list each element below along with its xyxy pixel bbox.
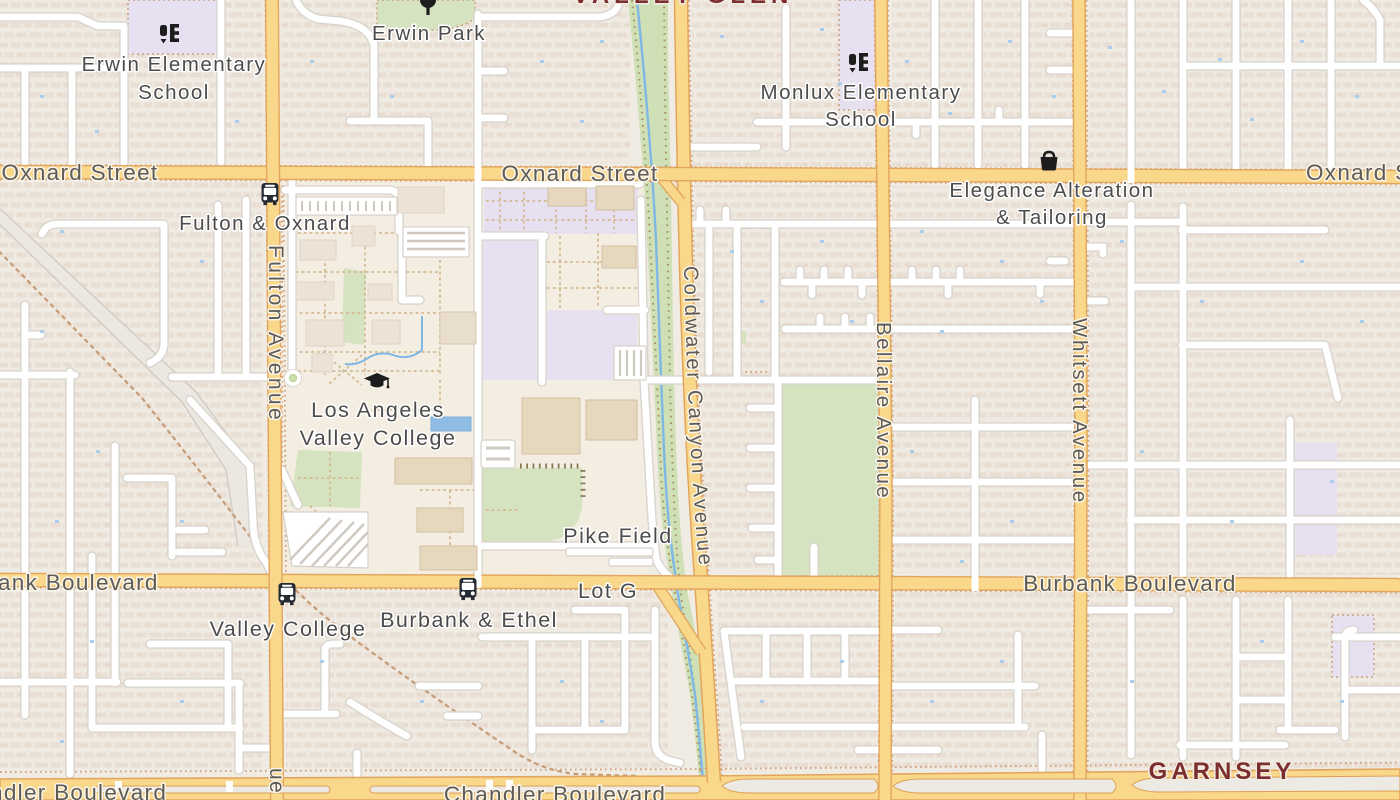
- svg-text:School: School: [825, 108, 897, 131]
- svg-text:Oxnard Street: Oxnard Street: [2, 160, 159, 185]
- svg-text:Los Angeles: Los Angeles: [311, 398, 445, 422]
- svg-text:Oxnard Street: Oxnard Street: [1306, 160, 1400, 185]
- svg-text:Erwin Park: Erwin Park: [372, 22, 486, 45]
- svg-text:& Tailoring: & Tailoring: [996, 206, 1108, 229]
- svg-text:Chandler Boulevard: Chandler Boulevard: [444, 782, 666, 800]
- svg-text:Monlux Elementary: Monlux Elementary: [761, 81, 962, 104]
- svg-text:Pike Field: Pike Field: [563, 524, 672, 548]
- svg-text:Chandler Boulevard: Chandler Boulevard: [0, 780, 167, 800]
- svg-text:Burbank Boulevard: Burbank Boulevard: [0, 570, 159, 595]
- svg-text:Bellaire Avenue: Bellaire Avenue: [872, 322, 895, 500]
- svg-text:Erwin Elementary: Erwin Elementary: [82, 53, 267, 76]
- svg-text:Burbank Boulevard: Burbank Boulevard: [1023, 571, 1236, 596]
- svg-text:Valley College: Valley College: [210, 617, 367, 641]
- svg-text:VALLEY GLEN: VALLEY GLEN: [573, 0, 794, 9]
- svg-text:ue: ue: [265, 768, 288, 794]
- svg-text:Fulton Avenue: Fulton Avenue: [264, 245, 287, 423]
- svg-text:Valley College: Valley College: [300, 426, 457, 450]
- svg-text:Lot G: Lot G: [578, 579, 638, 603]
- svg-text:School: School: [138, 81, 210, 104]
- svg-text:Oxnard Street: Oxnard Street: [502, 161, 659, 186]
- svg-text:Fulton & Oxnard: Fulton & Oxnard: [179, 212, 351, 235]
- svg-text:GARNSEY: GARNSEY: [1149, 758, 1296, 785]
- svg-text:Elegance Alteration: Elegance Alteration: [949, 179, 1154, 202]
- svg-text:Whitsett Avenue: Whitsett Avenue: [1068, 318, 1091, 505]
- svg-text:Burbank & Ethel: Burbank & Ethel: [380, 608, 558, 632]
